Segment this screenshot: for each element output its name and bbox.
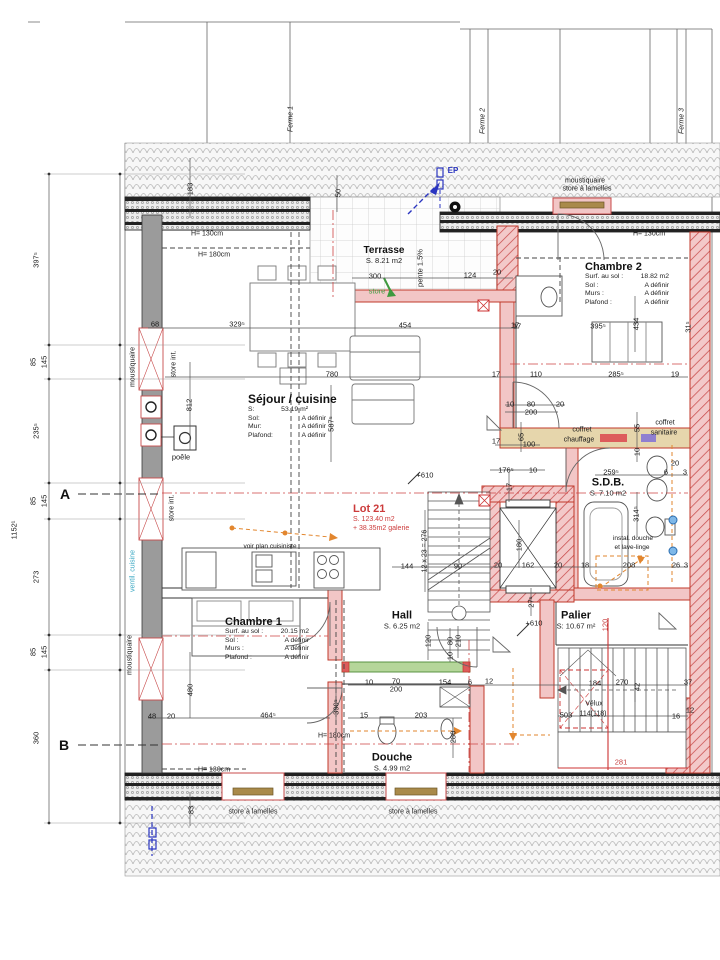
room-label-palier: Palier S: 10.67 m²	[557, 610, 596, 631]
room-line-label: Sol:	[248, 415, 260, 424]
room-line-value: 53.19 m²	[281, 406, 308, 415]
room-line-value: A définir	[301, 423, 326, 432]
room-line-label: Plafond :	[585, 299, 612, 308]
room-area: S. 8.21 m2	[364, 256, 405, 265]
lot-surface: S. 123.40 m2	[353, 515, 409, 524]
green-bar	[342, 662, 470, 672]
room-title: Chambre 1	[225, 616, 309, 628]
room-line-label: Mur:	[248, 423, 262, 432]
room-area: S. 7.10 m2	[590, 489, 626, 498]
grid-letter-a: A	[60, 486, 70, 502]
room-label-terrasse: Terrasse S. 8.21 m2	[364, 245, 405, 265]
room-line-value: A définir	[644, 282, 669, 291]
room-label-douche: Douche S. 4.99 m2	[372, 752, 412, 773]
room-title: S.D.B.	[590, 477, 626, 489]
room-line-label: Surf. au sol :	[225, 628, 263, 637]
room-line-value: A définir	[284, 645, 309, 654]
stairs-lower	[558, 648, 686, 768]
room-label-hall: Hall S. 6.25 m2	[384, 610, 420, 631]
grid-letter-b: B	[59, 737, 69, 753]
room-label-chambre2: Chambre 2 Surf. au sol :18.82 m2 Sol :A …	[585, 261, 669, 307]
room-line-value: A définir	[301, 415, 326, 424]
room-title: Terrasse	[364, 245, 405, 256]
room-line-label: Plafond:	[248, 432, 273, 441]
room-title: Douche	[372, 752, 412, 764]
room-line-value: A définir	[644, 290, 669, 299]
floorplan-sheet: Terrasse S. 8.21 m2 Chambre 2 Surf. au s…	[0, 0, 720, 960]
room-line-value: A définir	[301, 432, 326, 441]
room-line-value: A définir	[284, 654, 309, 663]
room-area: S. 6.25 m2	[384, 622, 420, 631]
room-area: S: 10.67 m²	[557, 622, 596, 631]
room-line-label: S:	[248, 406, 254, 415]
room-line-label: Murs :	[225, 645, 244, 654]
kitchen	[182, 548, 380, 590]
room-line-label: Plafond :	[225, 654, 252, 663]
lot-title: Lot 21	[353, 503, 409, 515]
room-title: Chambre 2	[585, 261, 669, 273]
room-line-label: Sol :	[585, 282, 599, 291]
room-line-label: Surf. au sol :	[585, 273, 623, 282]
room-area: S. 4.99 m2	[372, 764, 412, 773]
room-line-value: A définir	[644, 299, 669, 308]
room-line-value: 18.82 m2	[641, 273, 669, 282]
elevator	[500, 500, 556, 593]
room-line-label: Sol :	[225, 637, 239, 646]
room-label-sdb: S.D.B. S. 7.10 m2	[590, 477, 626, 498]
room-title: Séjour / cuisine	[248, 392, 337, 406]
dimension-ticks	[48, 173, 122, 825]
room-title: Palier	[557, 610, 596, 622]
lot-label: Lot 21 S. 123.40 m2 + 38.35m2 galerie	[353, 503, 409, 533]
room-line-label: Murs :	[585, 290, 604, 299]
lot-galerie: + 38.35m2 galerie	[353, 524, 409, 533]
room-title: Hall	[384, 610, 420, 622]
room-label-chambre1: Chambre 1 Surf. au sol :20.15 m2 Sol :A …	[225, 616, 309, 662]
room-label-sejour: Séjour / cuisine S:53.19 m² Sol:A défini…	[248, 392, 337, 440]
room-line-value: A définir	[284, 637, 309, 646]
room-line-value: 20.15 m2	[281, 628, 309, 637]
